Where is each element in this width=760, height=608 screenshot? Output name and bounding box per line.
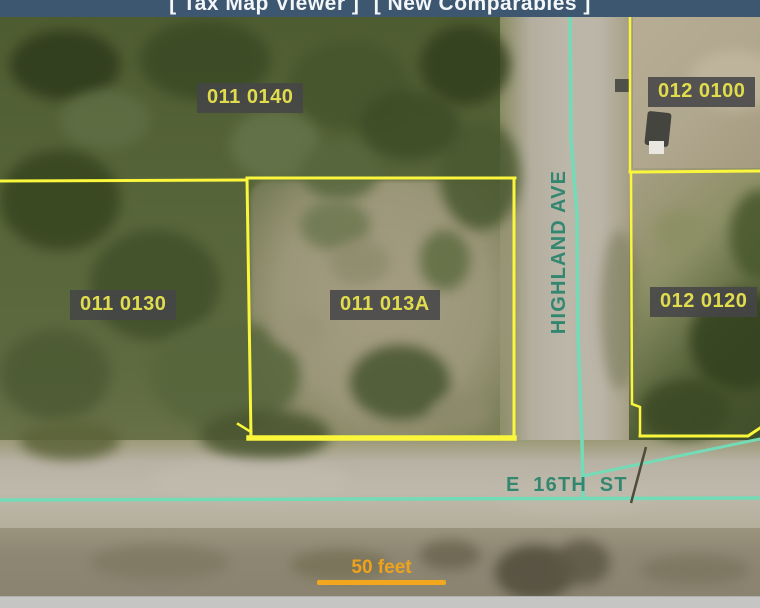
street-centerline-branch — [583, 439, 760, 476]
tax-map-viewer-link[interactable]: [ Tax Map Viewer ] — [169, 0, 359, 15]
street-centerline-e-16th-st — [0, 498, 760, 500]
parcel-label-012-0100[interactable]: 012 0100 — [648, 77, 755, 107]
parcel-line-west-top — [0, 180, 247, 181]
parcel-boundary-012-0120-left — [631, 172, 640, 435]
header-nav: [ Tax Map Viewer ] [ New Comparables ] — [0, 0, 760, 16]
parcel-boundary-012-split — [630, 171, 760, 172]
new-comparables-link[interactable]: [ New Comparables ] — [374, 0, 591, 15]
street-centerlines — [0, 17, 760, 500]
parcel-label-012-0120[interactable]: 012 0120 — [650, 287, 757, 317]
street-centerline-highland-ave — [570, 17, 583, 498]
parcel-boundary-011-013A-left — [247, 178, 251, 438]
parcel-boundaries — [0, 17, 760, 438]
parcel-boundary-012-0120-bottom — [640, 428, 760, 436]
parcel-label-011-0140[interactable]: 011 0140 — [197, 83, 303, 113]
scale-bar — [317, 580, 446, 585]
horizontal-scrollbar[interactable] — [0, 596, 760, 608]
parcel-line-notch — [238, 424, 251, 432]
header-bar: [ Tax Map Viewer ] [ New Comparables ] — [0, 0, 760, 17]
scale-bar-label: 50 feet — [317, 557, 446, 579]
tax-map-viewer-window: 011 0140 012 0100 011 0130 011 013A 012 … — [0, 0, 760, 608]
parcel-label-011-0130[interactable]: 011 0130 — [70, 290, 176, 320]
street-label-e-16th-st: E 16TH ST — [506, 474, 628, 497]
parcel-label-011-013A[interactable]: 011 013A — [330, 290, 440, 320]
curb-mark — [631, 447, 646, 503]
street-label-highland-ave: HIGHLAND AVE — [548, 167, 570, 337]
